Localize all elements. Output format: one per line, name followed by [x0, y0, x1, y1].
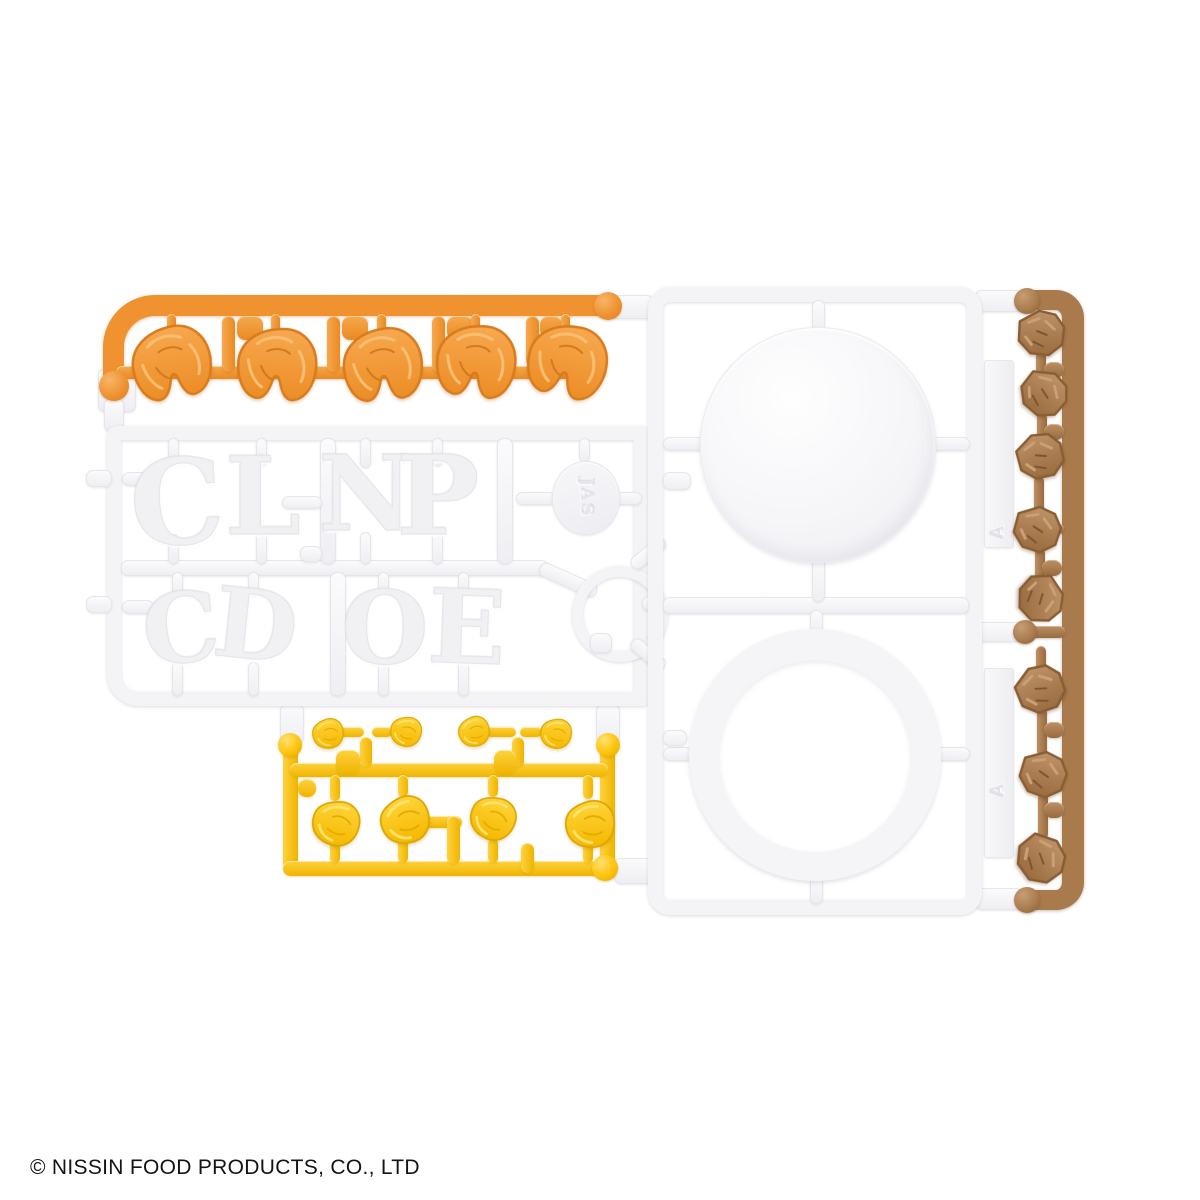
egg-piece-large [370, 787, 439, 854]
egg-piece-small [536, 715, 575, 752]
molding-tab [663, 730, 687, 746]
egg-piece-small [385, 712, 426, 751]
runner-knob [278, 733, 302, 757]
copyright-text: © NISSIN FOOD PRODUCTS, CO., LTD [30, 1156, 420, 1180]
letter-runner-divider [497, 438, 513, 564]
egg-runner-bottom-rail [283, 861, 613, 876]
letter-c-top: C [126, 441, 228, 565]
plate-marking-a: A [988, 784, 1009, 797]
shrimp-piece [116, 312, 230, 418]
letter-o: O [341, 578, 428, 678]
runner-knob [592, 855, 618, 881]
meat-piece [1014, 569, 1069, 627]
molding-tab [663, 472, 691, 490]
molding-tab [86, 470, 112, 487]
molding-tab [336, 750, 360, 774]
letter-d: D [210, 574, 303, 678]
sprue-gate [936, 747, 970, 761]
molding-tab [1044, 722, 1064, 738]
shrimp-piece [225, 319, 331, 416]
sprue-photo-scene: C L N P C D O E JAS A A [0, 0, 1200, 1200]
molding-tab [447, 816, 460, 864]
shrimp-piece [509, 308, 628, 420]
sprue-gate [579, 438, 590, 462]
jas-badge: JAS [552, 461, 620, 535]
rim-ring [689, 629, 941, 881]
plate-marking-a: A [988, 526, 1009, 539]
letter-p: P [397, 441, 480, 551]
egg-piece-small [308, 715, 348, 753]
jas-badge-text: JAS [576, 478, 596, 518]
molding-tab [86, 596, 112, 613]
sprue-bar [360, 737, 372, 767]
sprue-gate [663, 437, 705, 451]
sprue-gate [583, 775, 593, 799]
letter-l: L [225, 443, 301, 551]
molding-tab [590, 633, 612, 653]
egg-piece-large [460, 786, 526, 850]
meat-piece [1005, 499, 1068, 559]
egg-piece-large [304, 793, 367, 853]
runner-knob [594, 292, 622, 320]
lid-disc [700, 327, 936, 563]
letter-e: E [426, 576, 507, 681]
molding-tab [494, 750, 516, 774]
runner-knob [596, 733, 620, 757]
marking-plate [984, 668, 1014, 858]
molding-tab [521, 843, 534, 873]
egg-piece-large [559, 795, 620, 853]
egg-piece-small [453, 711, 496, 752]
meat-piece [1014, 308, 1068, 358]
sprue-gate [516, 492, 556, 505]
marking-plate [984, 360, 1014, 548]
